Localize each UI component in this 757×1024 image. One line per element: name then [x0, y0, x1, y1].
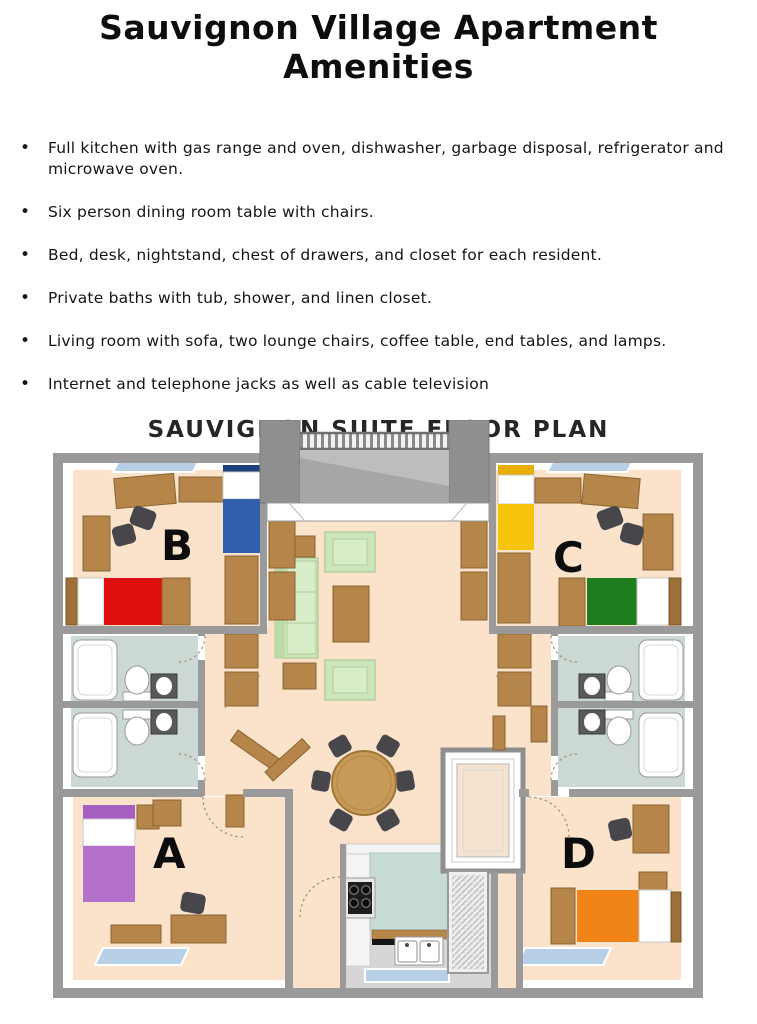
bathroom-left — [71, 636, 198, 787]
faucet — [427, 943, 431, 947]
floor-plan: B C A D — [53, 420, 703, 1014]
wall-bath-divider-right — [558, 701, 693, 708]
bathtub — [639, 713, 683, 777]
bed-orange — [577, 890, 639, 942]
toilet — [125, 717, 149, 745]
entry-closet-inner — [457, 764, 509, 857]
amenity-item: Six person dining room table with chairs… — [20, 202, 729, 223]
wall-a-right — [285, 789, 293, 988]
entry-stairs — [300, 433, 449, 449]
wall-top-right — [489, 453, 703, 463]
wall-d-left — [516, 871, 523, 988]
wall-bath-right — [551, 780, 558, 796]
hall-closet — [225, 634, 258, 668]
wall-a-top — [53, 789, 203, 797]
coffee-table — [333, 586, 369, 642]
bed-red-pillow — [78, 578, 104, 625]
bed-purple-headboard — [83, 805, 135, 819]
toilet — [607, 717, 631, 745]
armchair-cushion — [333, 539, 367, 565]
room-label-d: D — [561, 829, 596, 878]
wall-bath-left — [198, 660, 205, 756]
porch-threshold — [267, 503, 489, 521]
chair — [179, 891, 206, 915]
dresser — [111, 925, 161, 943]
wall-kitchen-right — [491, 871, 498, 988]
bed-blue-pillow — [223, 472, 260, 499]
wall-bath-right — [551, 626, 558, 636]
bed-blue-headboard — [223, 465, 260, 472]
bed-orange-pillow — [639, 890, 671, 942]
wardrobe — [551, 888, 575, 944]
armchair-cushion — [333, 667, 367, 693]
window-d — [517, 948, 611, 965]
faucet — [405, 943, 409, 947]
bed-frame — [66, 578, 78, 625]
closet-door-plank — [493, 716, 505, 750]
kitchen-window — [365, 969, 449, 982]
kitchen-counter — [370, 853, 451, 930]
wall-top-left — [53, 453, 260, 463]
amenity-item: Living room with sofa, two lounge chairs… — [20, 331, 729, 352]
bed-frame — [669, 578, 681, 625]
bed-green — [587, 578, 637, 625]
dining-chair — [394, 770, 415, 793]
bed-frame — [671, 892, 681, 942]
bathtub — [73, 640, 117, 700]
sofa-cushion — [287, 623, 316, 654]
bed-purple-pillow — [83, 819, 135, 846]
room-label-a: A — [153, 829, 186, 878]
window-a — [95, 948, 189, 965]
desk — [171, 915, 226, 943]
shelf — [269, 572, 295, 620]
wall-b-bottom — [53, 626, 267, 634]
desk — [179, 477, 225, 502]
bed-red — [104, 578, 162, 625]
desk — [643, 514, 673, 570]
closet-b — [225, 556, 258, 624]
wall-bath-right — [551, 660, 558, 756]
bathroom-right — [558, 636, 685, 787]
shelf — [269, 520, 295, 568]
wall-bottom — [53, 988, 703, 998]
sink-basin — [584, 713, 600, 731]
room-label-b: B — [161, 521, 193, 570]
room-label-c: C — [553, 533, 584, 582]
desk — [535, 478, 581, 503]
desk — [582, 474, 640, 509]
wall-d-top — [569, 789, 703, 797]
dining-table — [332, 751, 396, 815]
shelf — [461, 572, 487, 620]
entry-porch — [260, 420, 489, 521]
desk — [114, 473, 176, 508]
wardrobe — [559, 578, 585, 626]
wall-c-left — [489, 463, 496, 626]
wardrobe — [162, 578, 190, 625]
shelf — [461, 520, 487, 568]
document-page: Sauvignon Village Apartment Amenities Fu… — [0, 0, 757, 1024]
hall-closet — [226, 795, 244, 827]
closet-c — [498, 553, 530, 623]
desk — [83, 516, 110, 571]
desk — [633, 805, 669, 853]
kitchen-counter-edge — [346, 844, 451, 854]
bed-blue — [223, 499, 260, 553]
bed-yellow — [498, 504, 534, 550]
amenity-item: Internet and telephone jacks as well as … — [20, 374, 729, 395]
amenity-item: Bed, desk, nightstand, chest of drawers,… — [20, 245, 729, 266]
burner — [362, 899, 370, 907]
sink-basin — [156, 677, 172, 695]
bed-yellow-headboard — [498, 465, 534, 475]
wall-kitchen-left — [340, 844, 346, 988]
amenity-item: Full kitchen with gas range and oven, di… — [20, 138, 729, 180]
sink-basin — [156, 713, 172, 731]
wall-right — [693, 453, 703, 998]
burner — [350, 886, 358, 894]
entry-column-right — [449, 420, 489, 503]
wall-d-top — [519, 789, 529, 797]
toilet — [125, 666, 149, 694]
sink-basin — [584, 677, 600, 695]
dishwasher-handle — [372, 939, 396, 945]
page-title: Sauvignon Village Apartment Amenities — [10, 0, 747, 86]
bed-purple — [83, 846, 135, 902]
amenity-item: Private baths with tub, shower, and line… — [20, 288, 729, 309]
dining-chair — [310, 770, 331, 793]
wall-bath-divider-left — [63, 701, 198, 708]
wall-bath-left — [198, 626, 205, 636]
closet-door-plank — [531, 706, 547, 742]
amenities-list: Full kitchen with gas range and oven, di… — [0, 138, 757, 395]
end-table — [283, 663, 316, 689]
toilet — [607, 666, 631, 694]
burner — [362, 886, 370, 894]
wall-left — [53, 453, 63, 998]
bed-yellow-pillow — [498, 475, 534, 504]
bathtub — [73, 713, 117, 777]
bed-green-pillow — [637, 578, 669, 625]
bathtub — [639, 640, 683, 700]
floor-plan-svg: B C A D — [53, 420, 703, 1010]
utility-closet-shelves — [452, 875, 484, 969]
closet-a — [153, 800, 181, 826]
wall-c-bottom — [489, 626, 703, 634]
burner — [350, 899, 358, 907]
entry-column-left — [260, 420, 300, 503]
hall-closet — [498, 634, 531, 668]
